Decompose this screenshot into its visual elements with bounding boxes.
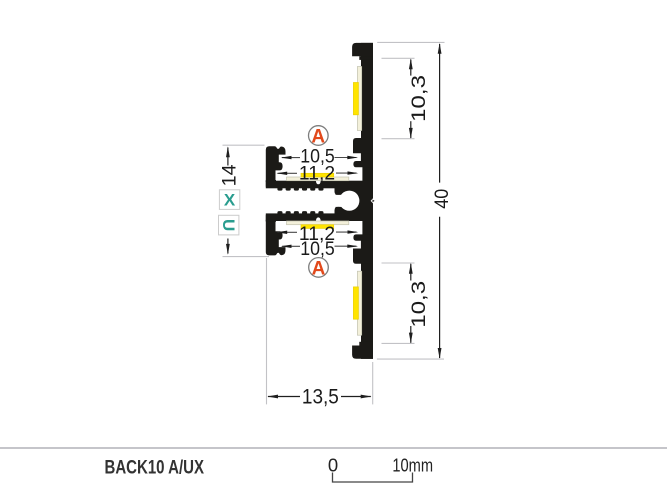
svg-text:13,5: 13,5	[302, 385, 339, 409]
svg-text:A: A	[311, 127, 325, 148]
svg-text:A: A	[312, 258, 326, 279]
svg-text:10,5: 10,5	[300, 238, 335, 260]
svg-text:0: 0	[328, 455, 338, 476]
svg-text:40: 40	[432, 189, 453, 209]
svg-text:BACK10 A/UX: BACK10 A/UX	[105, 458, 205, 479]
svg-text:11,2: 11,2	[299, 163, 335, 185]
svg-text:10mm: 10mm	[392, 455, 433, 476]
svg-text:10,3: 10,3	[409, 75, 430, 122]
svg-text:U: U	[219, 219, 238, 231]
svg-text:10,3: 10,3	[409, 281, 430, 328]
svg-text:X: X	[224, 191, 236, 210]
svg-text:14: 14	[220, 164, 241, 186]
